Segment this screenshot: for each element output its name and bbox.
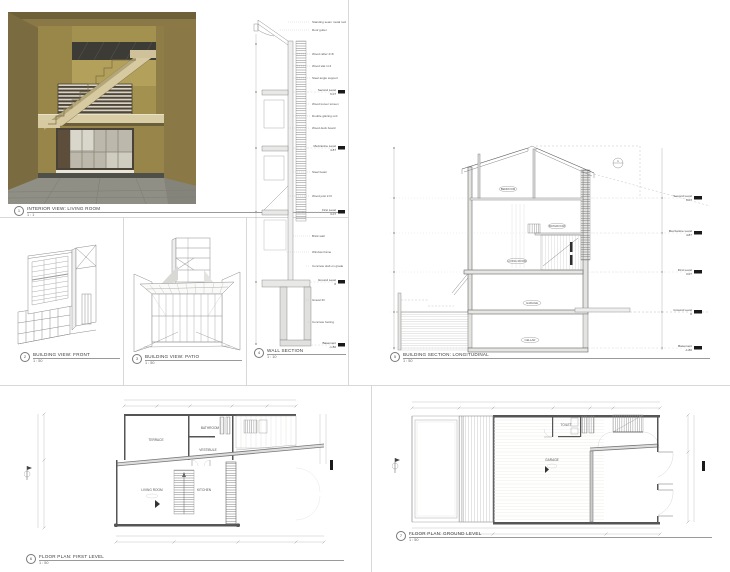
floor-plan-first-level: TERRACE BATHROOM VESTIBULE LIVING ROOM K… [24, 388, 346, 552]
plan0-deck [459, 416, 493, 522]
building-view-patio-drawing [128, 230, 246, 352]
floor-plan-ground-level: TOILET GARAGE [392, 396, 722, 536]
view-scale: 1 : 50 [39, 561, 344, 566]
svg-text:Roof gutter: Roof gutter [312, 28, 327, 32]
floor-plan-first-title: 6 FLOOR PLAN: FIRST LEVEL 1 : 50 [26, 554, 344, 565]
wall-section-view: Standing seam metal roof Roof gutter Woo… [250, 4, 346, 349]
building-section-view: BEDROOM BATHROOM LIVING ROOM GARAGE CELL… [388, 138, 714, 362]
north-arrow-icon [392, 458, 400, 473]
floor [8, 178, 196, 204]
svg-text:Wood rafter 2×8: Wood rafter 2×8 [312, 52, 334, 56]
view-number: 2 [20, 352, 30, 362]
svg-text:Window frame: Window frame [312, 250, 332, 254]
svg-text:4.87: 4.87 [686, 233, 692, 237]
svg-text:6.07: 6.07 [330, 92, 336, 96]
svg-text:Concrete slab on grade: Concrete slab on grade [312, 264, 344, 268]
svg-text:6.07: 6.07 [686, 198, 692, 202]
floor-plan-first-drawing: TERRACE BATHROOM VESTIBULE LIVING ROOM K… [24, 388, 346, 552]
divider-vertical-plans [371, 385, 372, 572]
svg-text:Brick wall: Brick wall [312, 234, 325, 238]
svg-text:VESTIBULE: VESTIBULE [199, 448, 217, 452]
svg-text:Wood louver screen: Wood louver screen [312, 102, 339, 106]
svg-text:3.07: 3.07 [686, 272, 692, 276]
view-scale: 1 : 50 [33, 359, 120, 364]
wall-section-drawing: Standing seam metal roof Roof gutter Woo… [250, 4, 346, 349]
svg-text:BATHROOM: BATHROOM [549, 224, 566, 228]
front-tower [72, 245, 96, 330]
plan0-lawn [415, 420, 457, 518]
svg-text:BEDROOM: BEDROOM [501, 187, 516, 191]
building-section-drawing: BEDROOM BATHROOM LIVING ROOM GARAGE CELL… [388, 138, 714, 362]
view-scale: 1 : 10 [267, 355, 346, 360]
svg-text:LIVING ROOM: LIVING ROOM [141, 488, 163, 492]
building-section-title: 5 BUILDING SECTION: LONGITUDINAL 1 : 50 [390, 352, 710, 363]
svg-text:1: 1 [617, 159, 619, 163]
view-scale: 1 : 50 [403, 359, 710, 364]
svg-text:Gravel fill: Gravel fill [312, 298, 325, 302]
patio-glazed-facade [152, 294, 222, 342]
svg-text:CELLAR: CELLAR [525, 338, 536, 342]
drawing-sheet: { "colors": { "render_wall": "#8a7847", … [0, 0, 730, 572]
building-view-front-drawing [12, 236, 120, 348]
svg-text:GARAGE: GARAGE [526, 301, 538, 305]
svg-text:Standing seam metal roof: Standing seam metal roof [312, 20, 346, 24]
building-view-patio [128, 230, 246, 352]
view-scale: 1 : 50 [145, 361, 242, 366]
patio-canopy [140, 282, 234, 294]
patio-view-title: 3 BUILDING VIEW: PATIO 1 : 50 [132, 354, 242, 365]
svg-text:3.07: 3.07 [330, 212, 336, 216]
dimension-string-left [393, 147, 394, 350]
view-number: 1 [14, 206, 24, 216]
view-scale: 1 : 50 [409, 538, 712, 543]
dimension-string-left [255, 34, 256, 345]
svg-text:Double glazing unit: Double glazing unit [312, 114, 338, 118]
wall-body [288, 41, 306, 282]
plan0-floorboards [494, 418, 604, 522]
section-marker [330, 460, 333, 470]
svg-text:Steel angle support: Steel angle support [312, 76, 338, 80]
divider-vertical-views [123, 217, 124, 385]
plan1-sloped-wall [116, 444, 324, 466]
front-view-title: 2 BUILDING VIEW: FRONT 1 : 50 [20, 352, 120, 363]
view-number: 3 [132, 354, 142, 364]
svg-text:0: 0 [334, 282, 336, 286]
lower-window-wall [56, 128, 134, 173]
svg-text:Wood joist 2×6: Wood joist 2×6 [312, 194, 332, 198]
svg-text:Wood deck board: Wood deck board [312, 126, 336, 130]
plan1-deck [236, 416, 296, 450]
view-number: 6 [26, 554, 36, 564]
foundation [280, 287, 311, 346]
interior-render-view [8, 12, 196, 204]
section-level-markers: Second Level 6.07 Mezzanine Level 4.87 F… [588, 148, 702, 352]
svg-text:TERRACE: TERRACE [148, 438, 163, 442]
divider-horizontal-plans [0, 385, 730, 386]
divider-vertical-main [348, 0, 349, 385]
svg-text:KITCHEN: KITCHEN [197, 488, 212, 492]
section-building [462, 146, 710, 352]
view-number: 4 [254, 348, 264, 358]
svg-text:4.87: 4.87 [330, 148, 336, 152]
svg-text:GARAGE: GARAGE [545, 458, 559, 462]
svg-text:TOILET: TOILET [560, 423, 571, 427]
wall-section-title: 4 WALL SECTION 1 : 10 [254, 348, 346, 359]
floor-plan-ground-title: 7 FLOOR PLAN: GROUND LEVEL 1 : 50 [396, 531, 712, 542]
view-number: 5 [390, 352, 400, 362]
interior-render-image [8, 12, 196, 204]
svg-text:LIVING ROOM: LIVING ROOM [508, 259, 527, 263]
svg-text:Wood slat 1×4: Wood slat 1×4 [312, 64, 332, 68]
section-marker [702, 461, 705, 471]
floor-plan-ground-drawing: TOILET GARAGE [392, 396, 722, 536]
left-site [396, 271, 472, 350]
north-arrow-icon [24, 466, 32, 480]
svg-text:Steel beam: Steel beam [312, 170, 328, 174]
building-view-front [12, 236, 120, 348]
divider-vertical-views2 [246, 217, 247, 385]
svg-text:BATHROOM: BATHROOM [201, 426, 220, 430]
svg-text:Concrete footing: Concrete footing [312, 320, 334, 324]
svg-text:0: 0 [690, 312, 692, 316]
wall-roof [254, 20, 288, 45]
plan0-stair [598, 415, 659, 448]
plan1-lower-block [114, 460, 320, 527]
view-number: 7 [396, 531, 406, 541]
